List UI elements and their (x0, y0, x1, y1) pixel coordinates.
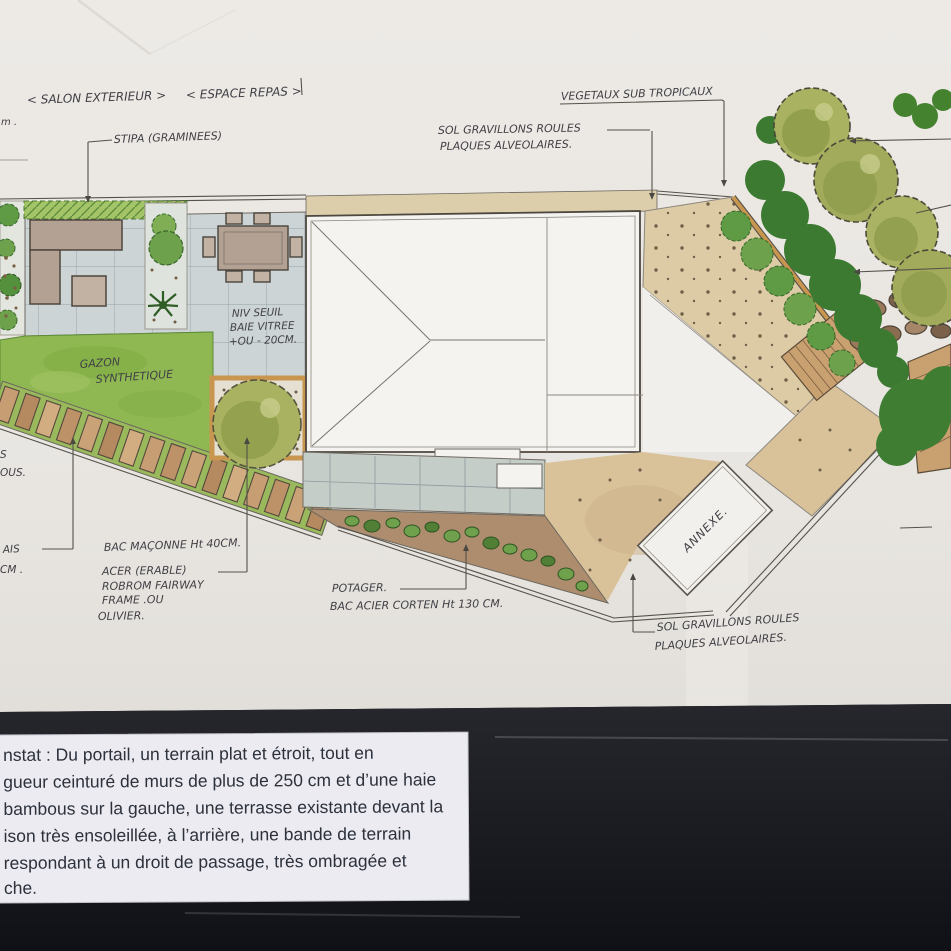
label-frag-ous: OUS. (0, 467, 26, 479)
caption-line-5: respondant à un droit de passage, très o… (4, 851, 407, 873)
label-niv-2: BAIE VITREE (230, 320, 295, 334)
label-niv-3: +OU - 20CM. (229, 334, 298, 348)
label-acer-1: ACER (ERABLE) (101, 564, 187, 578)
caption-line-6: che. (4, 878, 37, 898)
label-frag-s: S (0, 449, 7, 461)
label-acer-2: ROBROM FAIRWAY (102, 578, 205, 593)
plan-canvas: ANNEXE. (0, 0, 951, 951)
caption-line-3: bambous sur la gauche, une terrasse exis… (3, 796, 443, 819)
label-niv-1: NIV SEUIL (232, 306, 284, 320)
tree-planter (212, 378, 305, 468)
caption-area: nstat : Du portail, un terrain plat et é… (0, 732, 469, 903)
label-frag-cm: CM . (0, 564, 23, 576)
house (306, 211, 700, 462)
label-sol-top-2: PLAQUES ALVEOLAIRES. (440, 138, 573, 153)
caption-line-2: gueur ceinturé de murs de plus de 250 cm… (3, 769, 436, 792)
caption-line-1: nstat : Du portail, un terrain plat et é… (3, 743, 374, 765)
label-sol-top-1: SOL GRAVILLONS ROULES (438, 122, 581, 137)
rear-step (497, 464, 542, 488)
label-frag-top: m . (1, 117, 17, 128)
label-acer-4: OLIVIER. (98, 609, 145, 623)
caption-line-4: ison très ensoleillée, à l’arrière, une … (4, 823, 412, 845)
label-potager-1: POTAGER. (332, 581, 387, 595)
label-acer-3: FRAME .OU (102, 593, 164, 607)
garden-plan-photo: ANNEXE. (0, 0, 951, 951)
label-frag-ais: AIS (2, 543, 21, 556)
